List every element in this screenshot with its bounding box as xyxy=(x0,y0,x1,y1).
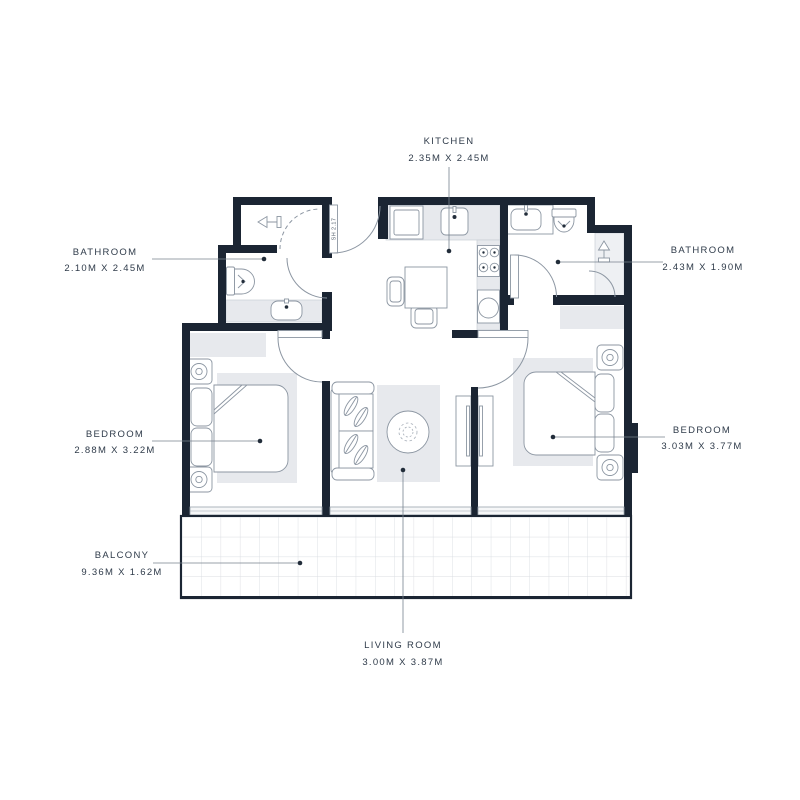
toilet-icon xyxy=(552,209,576,217)
pillow xyxy=(595,374,614,412)
bathroom-left-dims: 2.10M X 2.45M xyxy=(64,263,145,274)
shower-icon xyxy=(258,217,281,228)
sofa-armrest xyxy=(332,468,374,480)
washer-icon xyxy=(390,206,423,239)
bedroom-left-dims: 2.88M X 3.22M xyxy=(74,445,155,456)
living-room-label: LIVING ROOM xyxy=(364,640,442,651)
pillow xyxy=(595,414,614,452)
balcony-tiles xyxy=(182,517,630,597)
bedroom-right-label: BEDROOM xyxy=(673,425,731,436)
bathroom-right-door-swing xyxy=(515,255,557,297)
kitchen-dims: 2.35M X 2.45M xyxy=(408,153,489,164)
shower-tray-right xyxy=(595,233,624,297)
nightstand xyxy=(597,345,623,370)
wardrobe-right xyxy=(560,306,624,329)
balcony-dims: 9.36M X 1.62M xyxy=(81,567,162,578)
bedroom-left-label: BEDROOM xyxy=(86,429,144,440)
coffee-table xyxy=(387,411,429,453)
pillow xyxy=(191,388,212,426)
shower-door-swing xyxy=(280,209,320,249)
balcony-label: BALCONY xyxy=(95,550,150,561)
living-room-dims: 3.00M X 3.87M xyxy=(362,657,443,668)
floor-plan-svg: SH 2.17 KITCHEN 2.35M X 2.45M BATHROOM 2… xyxy=(0,0,800,800)
entry-door-swing xyxy=(334,206,381,253)
nightstand xyxy=(597,455,623,480)
bathroom-left-label: BATHROOM xyxy=(73,247,138,258)
wall-pilaster xyxy=(630,423,638,473)
bedroom-right-dims: 3.03M X 3.77M xyxy=(661,441,742,452)
tv-icon xyxy=(480,406,483,456)
sink-icon xyxy=(271,301,302,320)
tv-icon xyxy=(467,406,470,456)
kitchen-label: KITCHEN xyxy=(424,136,475,147)
bathroom-left-door-swing xyxy=(287,258,327,298)
balcony xyxy=(180,516,632,598)
sink-icon xyxy=(511,209,541,230)
dining-table xyxy=(405,267,447,308)
bathroom-right-dims: 2.43M X 1.90M xyxy=(662,262,743,273)
bedroom-right-door-leaf xyxy=(478,331,528,338)
floor-plan-page: SH 2.17 KITCHEN 2.35M X 2.45M BATHROOM 2… xyxy=(0,0,800,800)
windows xyxy=(190,507,624,515)
wardrobe-left xyxy=(190,333,266,357)
toilet-icon xyxy=(227,267,235,295)
bathroom-right-door-leaf xyxy=(511,255,519,298)
pillow xyxy=(191,428,212,466)
bedroom-left-door-leaf xyxy=(278,331,322,338)
sofa-armrest xyxy=(332,382,374,394)
door-size-label: SH 2.17 xyxy=(332,218,338,241)
bathroom-right-label: BATHROOM xyxy=(671,245,736,256)
